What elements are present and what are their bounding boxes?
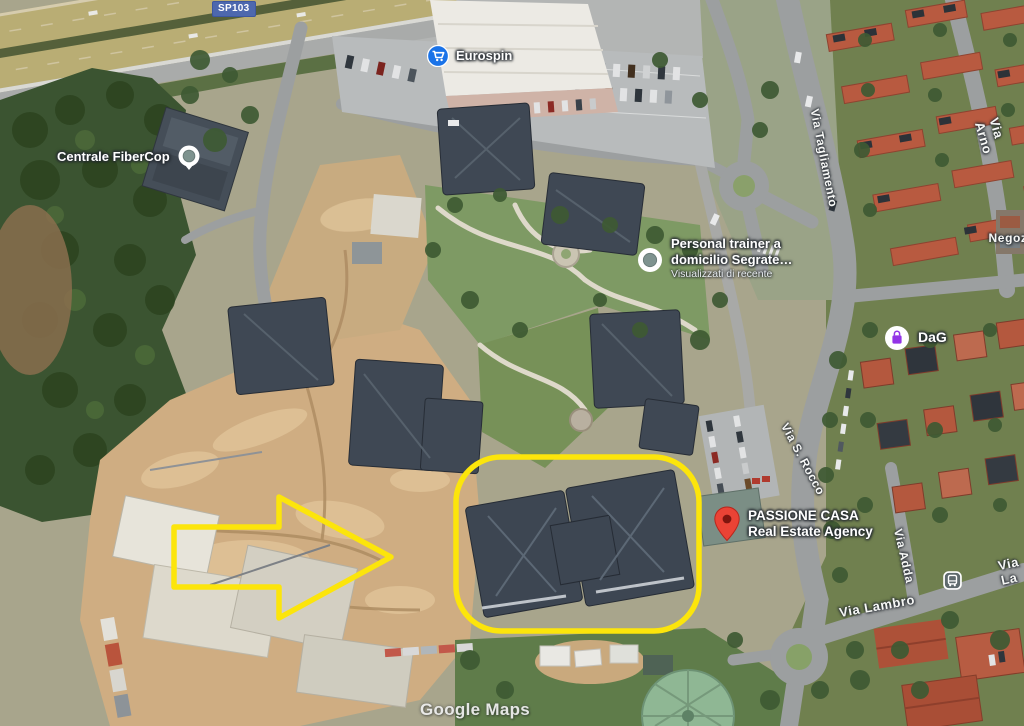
poi-fibercop-label: Centrale FiberCop xyxy=(57,149,170,165)
poi-eurospin[interactable]: Eurospin xyxy=(427,45,512,67)
red-map-pin-icon xyxy=(714,505,740,543)
shopping-bag-icon xyxy=(884,325,911,352)
poi-trainer-line2: domicilio Segrate… xyxy=(671,252,792,268)
recent-place-icon xyxy=(637,247,664,274)
poi-trainer-line1: Personal trainer a xyxy=(671,236,792,252)
poi-passione-line1: PASSIONE CASA xyxy=(748,508,873,524)
route-badge-sp103: SP103 xyxy=(212,1,256,17)
recent-place-icon xyxy=(177,144,201,171)
poi-trainer-meta: Visualizzati di recente xyxy=(671,268,792,281)
poi-centrale-fibercop[interactable]: Centrale FiberCop xyxy=(57,144,201,171)
poi-personal-trainer[interactable]: Personal trainer a domicilio Segrate… Vi… xyxy=(637,236,792,281)
map-canvas[interactable]: SP103 Eurospin Centrale FiberCop xyxy=(0,0,1024,726)
street-label-negozi: Negozi xyxy=(989,231,1024,245)
poi-passione-line2: Real Estate Agency xyxy=(748,524,873,540)
poi-eurospin-label: Eurospin xyxy=(456,48,512,64)
poi-dag[interactable]: DaG xyxy=(884,325,947,352)
shopping-cart-icon xyxy=(427,45,449,67)
bus-stop-icon[interactable] xyxy=(943,571,962,590)
google-maps-watermark: Google Maps xyxy=(420,700,530,720)
poi-dag-label: DaG xyxy=(918,329,947,345)
satellite-imagery xyxy=(0,0,1024,726)
poi-passione-casa[interactable]: PASSIONE CASA Real Estate Agency xyxy=(714,505,873,543)
